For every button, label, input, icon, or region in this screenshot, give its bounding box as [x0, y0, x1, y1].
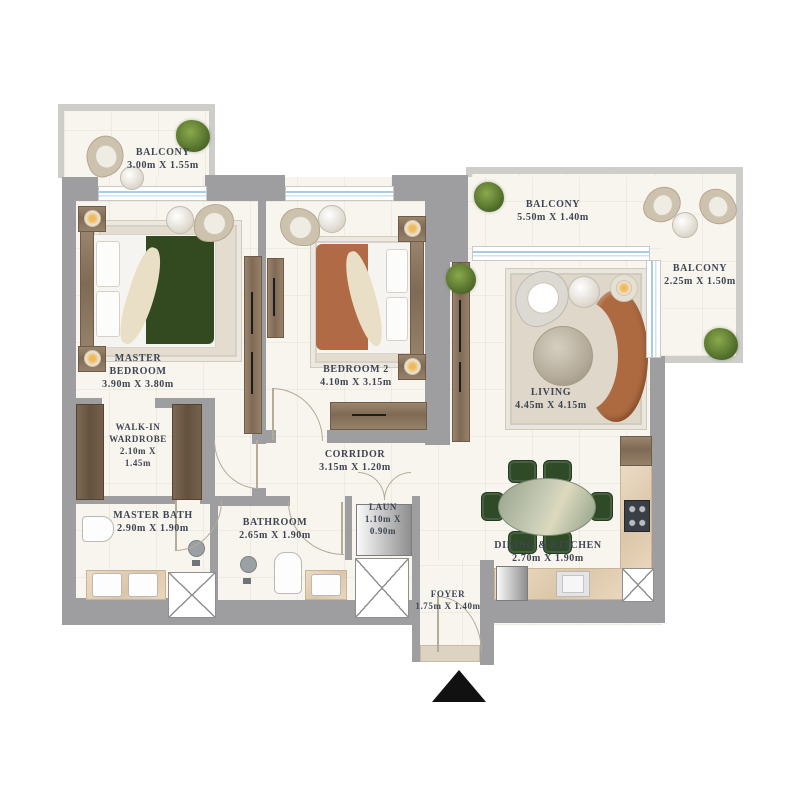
- wall-walkin-right: [200, 398, 215, 504]
- wall-left-exterior: [62, 177, 76, 623]
- room-name: DINING & KITCHEN: [468, 539, 628, 552]
- room-name: BEDROOM: [68, 365, 208, 378]
- balcony-top-left-wall: [58, 104, 64, 178]
- wardrobe-handle: [251, 352, 253, 394]
- wall-top: [205, 175, 285, 201]
- room-dims: 2.10m X: [102, 446, 174, 458]
- wardrobe-handle: [273, 278, 275, 316]
- room-name: BEDROOM 2: [286, 363, 426, 376]
- wall-right-exterior: [650, 356, 665, 600]
- room-name: WARDROBE: [102, 434, 174, 446]
- room-label-walkin-wardrobe: WALK-IN WARDROBE 2.10m X 1.45m: [102, 422, 174, 470]
- bedroom2-bed-headboard: [410, 238, 424, 358]
- basin-icon: [311, 574, 341, 596]
- room-label-balcony-right: BALCONY 2.25m X 1.50m: [630, 262, 770, 288]
- room-name: BALCONY: [630, 262, 770, 275]
- bedroom2-window: [285, 186, 394, 201]
- bedroom2-side-table: [318, 205, 346, 233]
- wardrobe-handle: [251, 292, 253, 334]
- room-dims: 1.45m: [102, 458, 174, 470]
- room-dims: 0.90m: [350, 526, 416, 538]
- console-handle: [459, 362, 461, 392]
- wall-bedroom2-living: [425, 198, 450, 445]
- fridge-icon: [496, 566, 528, 601]
- balcony-side-table: [672, 212, 698, 238]
- room-label-corridor: CORRIDOR 3.15m X 1.20m: [285, 448, 425, 474]
- living-coffee-table: [533, 326, 593, 386]
- living-side-table: [568, 276, 600, 308]
- door-leaf: [272, 388, 274, 440]
- room-label-master-bedroom: MASTER BEDROOM 3.90m X 3.80m: [68, 352, 208, 392]
- master-bed-pillow: [96, 291, 120, 337]
- room-label-foyer: FOYER 1.75m X 1.40m: [406, 589, 490, 613]
- walkin-wardrobe-unit: [172, 404, 202, 500]
- bedroom2-nightstand-lamp-icon: [404, 220, 421, 237]
- master-bed-headboard: [80, 230, 94, 350]
- shower-drain-icon: [192, 560, 200, 566]
- room-name: LAUN: [350, 502, 416, 514]
- room-label-balcony-top-left: BALCONY 3.00m X 1.55m: [93, 146, 233, 172]
- wardrobe-handle: [352, 414, 386, 416]
- room-dims: 4.10m X 3.15m: [286, 376, 426, 389]
- dining-table: [498, 478, 596, 536]
- room-dims: 1.10m X: [350, 514, 416, 526]
- bedroom2-bed-pillow: [386, 249, 408, 293]
- room-label-dining-kitchen: DINING & KITCHEN 2.70m X 1.90m: [468, 539, 628, 565]
- kitchen-upper-cabinet: [620, 436, 652, 466]
- room-dims: 1.75m X 1.40m: [406, 601, 490, 613]
- room-label-living: LIVING 4.45m X 4.15m: [481, 386, 621, 412]
- service-shaft-x-icon: [168, 572, 216, 618]
- room-dims: 2.90m X 1.90m: [83, 522, 223, 535]
- room-name: FOYER: [406, 589, 490, 601]
- room-dims: 2.25m X 1.50m: [630, 275, 770, 288]
- room-name: MASTER: [68, 352, 208, 365]
- room-label-balcony-top-right: BALCONY 5.50m X 1.40m: [483, 198, 623, 224]
- toilet-icon: [274, 552, 302, 594]
- floor-plan: BALCONY 3.00m X 1.55m MASTER BEDROOM 3.9…: [0, 0, 800, 800]
- room-name: WALK-IN: [102, 422, 174, 434]
- room-name: BATHROOM: [205, 516, 345, 529]
- shower-drain-icon: [243, 578, 251, 584]
- master-bedroom-side-table: [166, 206, 194, 234]
- room-dims: 3.00m X 1.55m: [93, 159, 233, 172]
- wall-corridor-top: [327, 430, 425, 443]
- wall-foyer-bottom-post: [412, 640, 420, 662]
- service-shaft-x-icon: [355, 558, 409, 618]
- console-handle: [459, 300, 461, 352]
- bedroom2-wardrobe: [267, 258, 284, 338]
- basin-icon: [128, 573, 158, 597]
- room-name: BALCONY: [93, 146, 233, 159]
- stove-icon: [624, 500, 650, 532]
- plant-icon: [704, 328, 738, 360]
- wall-top: [62, 177, 98, 201]
- service-shaft-x-icon: [622, 568, 654, 602]
- bedroom2-bed-pillow: [386, 297, 408, 341]
- bedroom2-armchair: [280, 208, 320, 246]
- balcony-top-left-wall: [58, 104, 215, 111]
- wall-bedroom2-living: [450, 177, 468, 262]
- master-wardrobe: [244, 256, 262, 434]
- room-dims: 3.15m X 1.20m: [285, 461, 425, 474]
- room-name: MASTER BATH: [83, 509, 223, 522]
- room-dims: 2.70m X 1.90m: [468, 552, 628, 565]
- master-bedroom-window: [98, 186, 207, 201]
- room-name: LIVING: [481, 386, 621, 399]
- room-dims: 3.90m X 3.80m: [68, 378, 208, 391]
- master-nightstand-lamp-icon: [84, 210, 101, 227]
- room-label-laundry: LAUN 1.10m X 0.90m: [350, 502, 416, 538]
- living-top-window: [472, 246, 650, 261]
- plant-icon: [446, 264, 476, 294]
- entrance-marker-triangle-icon: [432, 670, 486, 702]
- room-label-master-bath: MASTER BATH 2.90m X 1.90m: [83, 509, 223, 535]
- basin-icon: [92, 573, 122, 597]
- kitchen-sink-basin: [562, 575, 584, 593]
- room-dims: 5.50m X 1.40m: [483, 211, 623, 224]
- room-dims: 4.45m X 4.15m: [481, 399, 621, 412]
- bedroom2-low-wardrobe: [330, 402, 427, 430]
- door-leaf: [256, 440, 258, 488]
- room-dims: 2.65m X 1.90m: [205, 529, 345, 542]
- balcony-top-right-wall: [466, 167, 743, 174]
- shower-head-icon: [240, 556, 257, 573]
- walkin-wardrobe-unit: [76, 404, 104, 500]
- wall-hall-bottom: [215, 496, 290, 506]
- room-name: CORRIDOR: [285, 448, 425, 461]
- room-label-bathroom: BATHROOM 2.65m X 1.90m: [205, 516, 345, 542]
- room-name: BALCONY: [483, 198, 623, 211]
- master-bed-pillow: [96, 241, 120, 287]
- room-label-bedroom2: BEDROOM 2 4.10m X 3.15m: [286, 363, 426, 389]
